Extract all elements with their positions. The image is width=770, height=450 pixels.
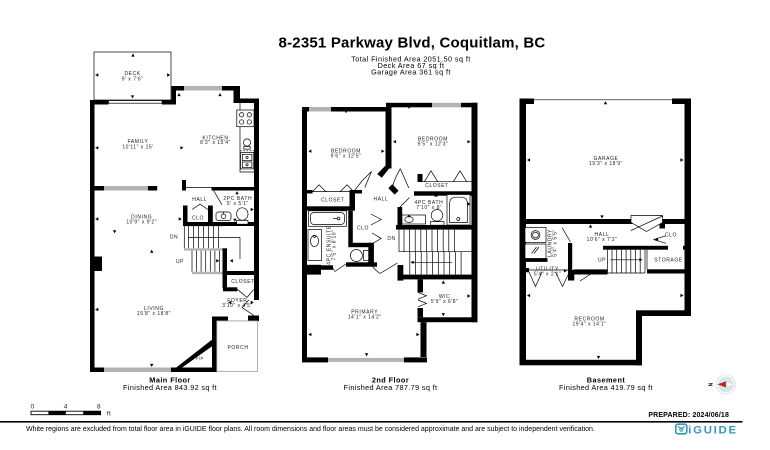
svg-text:9'6" x 12'5": 9'6" x 12'5" <box>331 154 362 160</box>
svg-text:CLOSET: CLOSET <box>321 198 345 204</box>
svg-text:Finished Area 419.79 sq ft: Finished Area 419.79 sq ft <box>559 383 653 392</box>
svg-text:White regions are excluded fro: White regions are excluded from total fl… <box>26 426 595 433</box>
svg-text:5'4" x 2'1": 5'4" x 2'1" <box>534 271 561 277</box>
svg-text:N: N <box>709 382 715 386</box>
svg-text:19'4" x 14'1": 19'4" x 14'1" <box>573 322 607 328</box>
svg-text:iGUIDE: iGUIDE <box>688 424 737 436</box>
svg-text:PREPARED: 2024/06/18: PREPARED: 2024/06/18 <box>648 412 729 419</box>
svg-text:8-2351 Parkway Blvd, Coquitlam: 8-2351 Parkway Blvd, Coquitlam, BC <box>279 35 546 52</box>
svg-text:14'1" x 14'2": 14'1" x 14'2" <box>348 315 382 321</box>
svg-text:Finished Area 787.79 sq ft: Finished Area 787.79 sq ft <box>344 383 438 392</box>
svg-text:Finished Area 843.92 sq ft: Finished Area 843.92 sq ft <box>123 383 217 392</box>
svg-text:15'8" x 18'8": 15'8" x 18'8" <box>137 311 171 317</box>
svg-text:CLO: CLO <box>192 216 204 222</box>
svg-text:7'5" x 8'10": 7'5" x 8'10" <box>332 230 338 261</box>
svg-text:5'9" x 6'8": 5'9" x 6'8" <box>431 299 458 305</box>
svg-text:5'4" x 5'5": 5'4" x 5'5" <box>553 229 559 256</box>
svg-text:UP: UP <box>598 258 606 264</box>
svg-text:8'3" x 15'4": 8'3" x 15'4" <box>200 140 231 146</box>
svg-text:19'3" x 18'9": 19'3" x 18'9" <box>589 161 623 167</box>
svg-text:0: 0 <box>31 403 35 410</box>
svg-text:ft: ft <box>107 410 112 417</box>
svg-text:F/P: F/P <box>196 356 204 361</box>
svg-text:STORAGE: STORAGE <box>654 257 683 263</box>
svg-text:DN: DN <box>170 235 178 241</box>
svg-text:HALL: HALL <box>192 197 207 203</box>
svg-text:DN: DN <box>387 236 395 242</box>
svg-text:CLO: CLO <box>665 233 677 239</box>
svg-text:Garage Area 361 sq ft: Garage Area 361 sq ft <box>371 67 451 76</box>
svg-text:10'6" x 7'2": 10'6" x 7'2" <box>587 237 618 243</box>
svg-text:9' x 7'6": 9' x 7'6" <box>122 76 144 82</box>
svg-text:10'11" x 15': 10'11" x 15' <box>122 144 153 150</box>
svg-text:4: 4 <box>64 403 68 410</box>
svg-text:UP: UP <box>176 259 184 265</box>
svg-text:CLOSET: CLOSET <box>231 279 255 285</box>
svg-text:3'10" x 4'5": 3'10" x 4'5" <box>222 303 253 309</box>
svg-text:8: 8 <box>97 403 101 410</box>
svg-text:5' x 5'1": 5' x 5'1" <box>227 201 249 207</box>
svg-text:HALL: HALL <box>374 196 389 202</box>
svg-text:PORCH: PORCH <box>227 345 248 351</box>
svg-text:10'9" x 9'2": 10'9" x 9'2" <box>126 220 157 226</box>
svg-text:9'5" x 12'3": 9'5" x 12'3" <box>418 141 449 147</box>
svg-text:CLOSET: CLOSET <box>425 183 449 189</box>
svg-text:CLO: CLO <box>357 225 369 231</box>
